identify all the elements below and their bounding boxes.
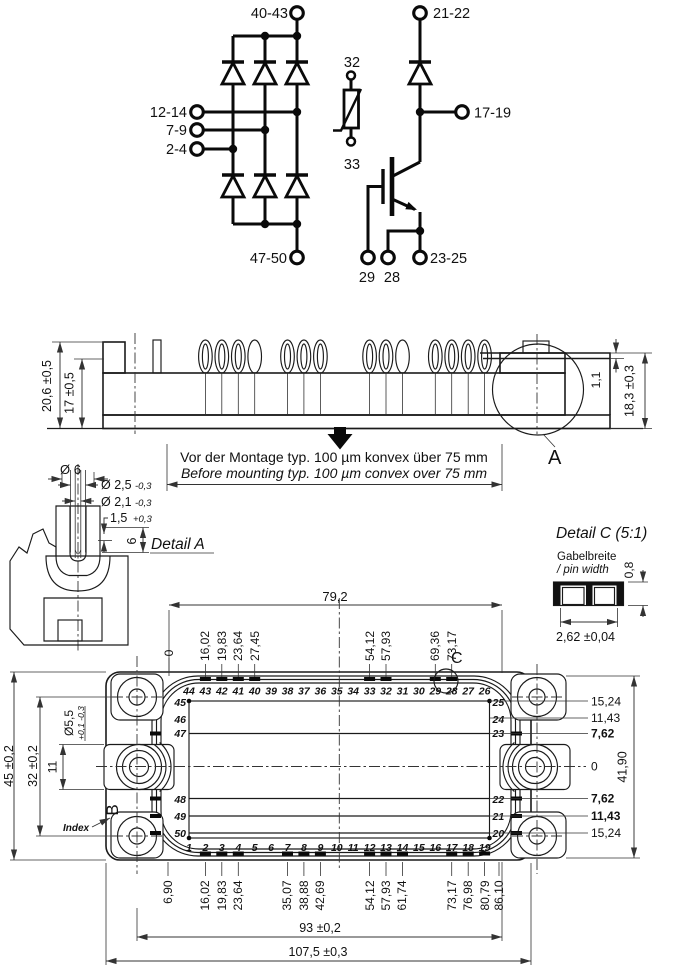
pin-number-bottom: 18 [462, 842, 474, 854]
terminal-dc-minus [291, 251, 304, 264]
dim-total-height: 20,6 ±0,5 [40, 360, 54, 412]
label-ntc-bottom: 33 [344, 157, 360, 173]
diode-icon [254, 63, 276, 84]
dim-len6: 6 [125, 537, 139, 544]
gate-line [368, 187, 383, 252]
note-german: Vor der Montage typ. 100 µm konvex über … [180, 449, 488, 465]
pin-number-left: 45 [173, 697, 186, 709]
housing-section [10, 529, 128, 645]
dim-total-width: 107,5 ±0,3 [289, 945, 348, 959]
right-cap [523, 341, 549, 353]
caption-german: Gabelbreite [557, 551, 616, 563]
label-dc-plus: 40-43 [251, 6, 288, 22]
pin-number-bottom: 6 [268, 842, 274, 854]
dim-label-bottom: 86,10 [492, 880, 506, 910]
detail-a-callout-circle [493, 344, 584, 435]
igbt-collector-diag [392, 162, 420, 177]
diode-icon [409, 63, 431, 84]
pin-number-bottom: 2 [201, 842, 208, 854]
dim-depth: 1,5 [110, 511, 127, 525]
cover-frame-3 [161, 683, 511, 849]
bottom-dimensions: 6,9016,0219,8323,6435,0738,8842,6954,125… [106, 862, 531, 965]
terminal-gate [362, 251, 375, 264]
dim-label-bottom: 38,88 [297, 880, 311, 910]
dim-d21: Ø 2,1 [101, 495, 132, 509]
pin-number-bottom: 17 [446, 842, 459, 854]
cover-frame-2 [157, 680, 516, 853]
diode-icon [222, 63, 244, 84]
dim-label-bottom: 76,98 [461, 880, 475, 910]
down-arrow-icon [328, 427, 353, 450]
junction-dot [293, 32, 301, 40]
dim-label-bottom: 61,74 [395, 880, 409, 910]
aux-emitter-line [388, 231, 420, 251]
dim-hole-pitch-v: 32 ±0,2 [26, 745, 40, 787]
dim-label-top: 19,83 [215, 631, 229, 661]
datum-zero-top: 0 [162, 649, 176, 656]
pin-number-bottom: 8 [301, 842, 307, 854]
pin-number-left: 47 [173, 728, 187, 740]
dim-right-2: 11,43 [591, 711, 620, 725]
label-collector: 21-22 [433, 6, 470, 22]
leg-lines [233, 20, 297, 252]
pin-number-top: 26 [478, 686, 491, 698]
schematic: 40-43 12-14 7-9 2-4 47-50 32 33 21-22 [150, 6, 511, 286]
terminal-ac1 [191, 106, 204, 119]
left-terminal-block [103, 342, 125, 373]
dim-label-bottom: 42,69 [313, 880, 327, 910]
dim-label-bottom: 6,90 [161, 880, 175, 904]
label-gate: 29 [359, 270, 375, 286]
dim-total-height: 41,90 [616, 751, 630, 782]
dim-pin-thickness: 0,8 [622, 561, 636, 578]
pin-number-top: 40 [248, 686, 261, 698]
pin-number-bottom: 12 [364, 842, 376, 854]
pin-number-right: 23 [492, 728, 505, 740]
dim-label-bottom: 57,93 [379, 880, 393, 910]
dim-label-bottom: 35,07 [280, 880, 294, 910]
detail-a-ref-letter: A [548, 447, 562, 469]
corner-ref-letter: B [103, 804, 122, 815]
dim-fork-width: 2,62 ±0,04 [556, 630, 615, 644]
label-ac3: 2-4 [166, 142, 187, 158]
pin-number-top: 44 [182, 686, 195, 698]
label-ntc-top: 32 [344, 55, 360, 71]
pin-number-top: 33 [364, 686, 376, 698]
label-emitter: 23-25 [430, 251, 467, 267]
pin-number-top: 30 [413, 686, 425, 698]
label-aux-collector: 17-19 [474, 106, 511, 122]
note-english: Before mounting typ. 100 µm convex over … [181, 465, 487, 481]
pin-number-right: 24 [492, 714, 505, 726]
dim-label-bottom: 19,83 [215, 880, 229, 910]
pin-number-top: 36 [315, 686, 327, 698]
terminal-ac2 [191, 124, 204, 137]
fork-pins-side [199, 340, 492, 414]
pin-number-top: 43 [199, 686, 212, 698]
fork-slot [563, 588, 585, 605]
detail-c-ref-letter: C [451, 650, 463, 667]
pin-number-bottom: 1 [186, 842, 192, 854]
pin-number-left: 48 [173, 794, 186, 806]
dim-label-top: 16,02 [198, 631, 212, 661]
label-ac2: 7-9 [166, 123, 187, 139]
junction-dot [261, 32, 269, 40]
dim-hole-tolerance: +0,1 -0,3 [76, 706, 86, 740]
datasheet-drawing-page: 40-43 12-14 7-9 2-4 47-50 32 33 21-22 [0, 0, 676, 974]
diode-icon [254, 176, 276, 197]
dim-label-top: 69,36 [428, 631, 442, 661]
terminal-emitter [414, 251, 427, 264]
dim-right-height: 18,3 ±0,3 [623, 365, 637, 417]
dim-label-bottom: 54,12 [363, 880, 377, 910]
pin-number-bottom: 10 [331, 842, 343, 854]
fork-top-band [554, 582, 624, 586]
terminal-aux-collector [456, 106, 469, 119]
pin-number-top: 31 [397, 686, 409, 698]
dim-label-top: 54,12 [363, 631, 377, 661]
emitter-arrow-icon [405, 202, 417, 210]
dim-label-bottom: 16,02 [198, 880, 212, 910]
label-dc-minus: 47-50 [250, 251, 287, 267]
fork-slot [595, 588, 615, 605]
pin-number-bottom: 19 [479, 842, 491, 854]
pin-number-top: 35 [331, 686, 343, 698]
dim-step: 1,1 [589, 371, 603, 388]
index-leader [92, 818, 110, 827]
screw-axis-lines [135, 333, 537, 434]
rectifier-circuit: 40-43 12-14 7-9 2-4 47-50 [150, 6, 308, 267]
terminal-aux-emitter [382, 251, 395, 264]
detail-a-title: Detail A [151, 536, 205, 553]
dim-d25: Ø 2,5 [101, 478, 132, 492]
right-terminal-block [500, 353, 565, 373]
pin-number-bottom: 15 [413, 842, 425, 854]
pin-number-bottom: 13 [380, 842, 392, 854]
terminal-collector [414, 7, 427, 20]
pin-number-bottom: 16 [429, 842, 441, 854]
dim-right-4: 7,62 [591, 792, 615, 806]
dim-fork: 11 [46, 760, 60, 773]
dim-label-bottom: 73,17 [445, 880, 459, 910]
terminal-ntc-top [347, 72, 355, 80]
pin-number-top: 37 [298, 686, 311, 698]
housing [103, 373, 565, 415]
terminal-ntc-bottom [347, 138, 355, 146]
pin-number-right: 25 [492, 697, 505, 709]
dim-right-3: 7,62 [591, 727, 615, 741]
junction-dot [293, 108, 301, 116]
fork-wall [554, 582, 561, 606]
dim-label-bottom: 23,64 [231, 880, 245, 910]
module-technical-drawing: 40-43 12-14 7-9 2-4 47-50 32 33 21-22 [0, 0, 676, 974]
baseplate [103, 415, 610, 429]
pin-number-left: 46 [173, 714, 186, 726]
dim-d25-tol: -0,3 [135, 481, 152, 492]
pin-loops [199, 340, 492, 373]
cover-frame-1 [152, 676, 520, 856]
dim-depth-tol: +0,3 [133, 514, 152, 525]
caption-english: / pin width [556, 564, 609, 576]
dim-inner-height: 17 ±0,5 [63, 372, 77, 414]
junction-dot [293, 220, 301, 228]
label-ac1: 12-14 [150, 105, 187, 121]
dim-right-5: 11,43 [591, 809, 621, 823]
pin-number-top: 32 [380, 686, 392, 698]
pin-number-left: 50 [174, 828, 186, 840]
junction-dot [416, 227, 424, 235]
dim-label-top: 23,64 [231, 631, 245, 661]
dim-outline-height: 45 ±0,2 [2, 745, 16, 787]
thermistor-symbol: 32 33 [333, 55, 361, 173]
label-aux-emitter: 28 [384, 270, 400, 286]
dim-right-0: 0 [591, 760, 598, 774]
dim-label-bottom: 80,79 [478, 880, 492, 910]
ac-input-lines [204, 112, 298, 149]
pin-number-right: 21 [492, 811, 505, 823]
pin-number-bottom: 4 [234, 842, 241, 854]
index-label: Index [63, 823, 90, 834]
dim-right-6: 15,24 [591, 826, 621, 840]
pin-number-top: 27 [461, 686, 475, 698]
dim-d6: Ø 6 [60, 462, 81, 477]
detail-c: Detail C (5:1) Gabelbreite / pin width 2… [554, 525, 649, 644]
dim-top-span: 79,2 [322, 589, 347, 604]
pin-number-right: 22 [492, 794, 505, 806]
igbt-circuit: 21-22 17-19 23-25 29 28 [359, 6, 511, 286]
pin-number-right: 20 [492, 828, 505, 840]
pin-number-bottom: 9 [317, 842, 323, 854]
diode-icon [286, 63, 308, 84]
diode-icon [222, 176, 244, 197]
pin-number-top: 41 [231, 686, 244, 698]
junction-dot [261, 220, 269, 228]
dim-label-top: 27,45 [248, 631, 262, 661]
pin-number-top: 34 [347, 686, 359, 698]
junction-dot [261, 126, 269, 134]
mounting-note: Vor der Montage typ. 100 µm konvex über … [167, 427, 502, 491]
dim-hole-pitch-h: 93 ±0,2 [299, 921, 341, 935]
pin-number-top: 42 [215, 686, 228, 698]
pin-number-top: 38 [282, 686, 294, 698]
dim-hole-diameter: Ø5,5 [62, 710, 76, 736]
terminal-ac3 [191, 143, 204, 156]
terminal-dc-plus [291, 7, 304, 20]
dim-right-1: 15,24 [591, 695, 621, 709]
fork-wall [617, 582, 624, 606]
detail-a-leader [543, 434, 555, 447]
pin-number-bottom: 11 [348, 842, 359, 854]
junction-dot [229, 145, 237, 153]
dim-d21-tol: -0,3 [135, 498, 152, 509]
detail-a: Ø 6 Ø 2,5 -0,3 Ø 2,1 -0,3 1,5 +0,3 6 Det… [10, 462, 214, 652]
pin-stems [205, 373, 484, 414]
pin-number-left: 49 [173, 811, 186, 823]
pin-number-bottom: 3 [219, 842, 225, 854]
dim-label-top: 57,93 [379, 631, 393, 661]
diode-icon [286, 176, 308, 197]
pin-number-bottom: 14 [397, 842, 409, 854]
detail-c-title: Detail C (5:1) [556, 525, 647, 542]
fork-wall [586, 582, 593, 606]
pin-number-bottom: 5 [252, 842, 258, 854]
left-tab [153, 340, 161, 373]
pin-number-top: 39 [265, 686, 277, 698]
junction-dot [416, 108, 424, 116]
